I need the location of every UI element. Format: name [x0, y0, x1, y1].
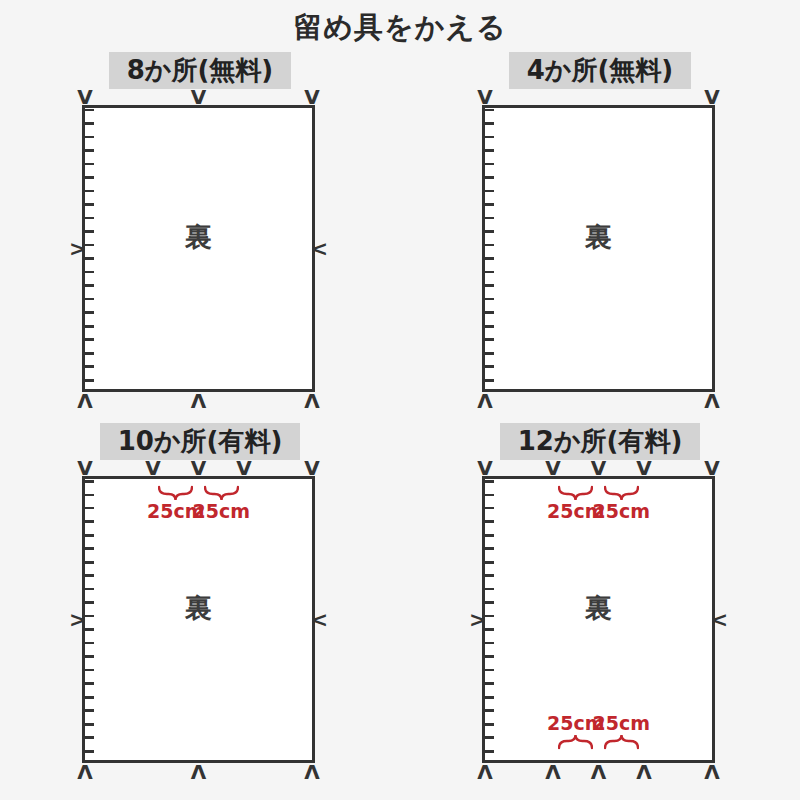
fastener-mark-left-icon: > [469, 609, 487, 630]
fastener-mark-bottom-icon: Λ [545, 762, 560, 782]
stitch-edge-ticks-icon [485, 109, 494, 387]
back-side-label: 裏 [585, 590, 612, 626]
fastener-mark-top-icon: V [77, 458, 92, 478]
fastener-mark-top-icon: V [304, 87, 319, 107]
fastener-mark-top-icon: V [636, 458, 651, 478]
dimension-brace-icon [158, 484, 193, 500]
fastener-mark-bottom-icon: Λ [304, 762, 319, 782]
fastener-mark-top-icon: V [191, 87, 206, 107]
fastener-mark-top-icon: V [477, 458, 492, 478]
fastener-mark-bottom-icon: Λ [191, 762, 206, 782]
fastener-mark-left-icon: > [69, 238, 87, 259]
fastener-mark-top-icon: V [304, 458, 319, 478]
fastener-mark-top-icon: V [545, 458, 560, 478]
fastener-diagram: 裏 VVVVVΛΛΛ><25cm25cm [0, 416, 400, 800]
dimension-annotation: 25cm [599, 713, 644, 751]
fastener-diagram: 裏 VVΛΛ [400, 45, 800, 430]
fastener-mark-bottom-icon: Λ [304, 391, 319, 411]
fastener-mark-top-icon: V [77, 87, 92, 107]
fastener-mark-top-icon: V [477, 87, 492, 107]
panel-12-spots: 12か所(有料) 裏 VVVVVΛΛΛΛΛ><25cm25cm25cm25cm [400, 416, 800, 800]
fastener-mark-bottom-icon: Λ [477, 762, 492, 782]
fastener-mark-right-icon: < [710, 609, 728, 630]
dimension-brace-icon [604, 484, 639, 500]
panel-8-spots: 8か所(無料) 裏 VVVΛΛΛ>< [0, 45, 400, 430]
fabric-back-rect: 裏 VVVVVΛΛΛ><25cm25cm [82, 476, 315, 763]
back-side-label: 裏 [185, 219, 212, 255]
panel-10-spots: 10か所(有料) 裏 VVVVVΛΛΛ><25cm25cm [0, 416, 400, 800]
fastener-mark-top-icon: V [591, 458, 606, 478]
fabric-back-rect: 裏 VVVΛΛΛ>< [82, 105, 315, 392]
fastener-mark-bottom-icon: Λ [636, 762, 651, 782]
fastener-mark-bottom-icon: Λ [77, 391, 92, 411]
dimension-annotation: 25cm [199, 484, 244, 522]
fastener-mark-top-icon: V [236, 458, 251, 478]
fastener-mark-bottom-icon: Λ [191, 391, 206, 411]
dimension-brace-icon [204, 484, 239, 500]
dimension-label: 25cm [592, 501, 650, 522]
fastener-mark-top-icon: V [704, 87, 719, 107]
dimension-label: 25cm [592, 713, 650, 734]
fastener-mark-top-icon: V [704, 458, 719, 478]
panel-4-spots: 4か所(無料) 裏 VVΛΛ [400, 45, 800, 430]
back-side-label: 裏 [585, 219, 612, 255]
dimension-brace-icon [604, 735, 639, 751]
fastener-mark-bottom-icon: Λ [477, 391, 492, 411]
fastener-mark-bottom-icon: Λ [704, 762, 719, 782]
dimension-brace-icon [558, 735, 593, 751]
dimension-annotation: 25cm [599, 484, 644, 522]
back-side-label: 裏 [185, 590, 212, 626]
dimension-brace-icon [558, 484, 593, 500]
fabric-back-rect: 裏 VVVVVΛΛΛΛΛ><25cm25cm25cm25cm [482, 476, 715, 763]
fastener-mark-bottom-icon: Λ [77, 762, 92, 782]
fastener-diagram: 裏 VVVVVΛΛΛΛΛ><25cm25cm25cm25cm [400, 416, 800, 800]
fastener-mark-right-icon: < [310, 609, 328, 630]
fastener-mark-left-icon: > [69, 609, 87, 630]
dimension-label: 25cm [192, 501, 250, 522]
fastener-mark-bottom-icon: Λ [591, 762, 606, 782]
fastener-mark-top-icon: V [191, 458, 206, 478]
fastener-mark-bottom-icon: Λ [704, 391, 719, 411]
fastener-mark-right-icon: < [310, 238, 328, 259]
page-title: 留め具をかえる [0, 8, 800, 48]
fastener-mark-top-icon: V [145, 458, 160, 478]
fastener-diagram: 裏 VVVΛΛΛ>< [0, 45, 400, 430]
fabric-back-rect: 裏 VVΛΛ [482, 105, 715, 392]
